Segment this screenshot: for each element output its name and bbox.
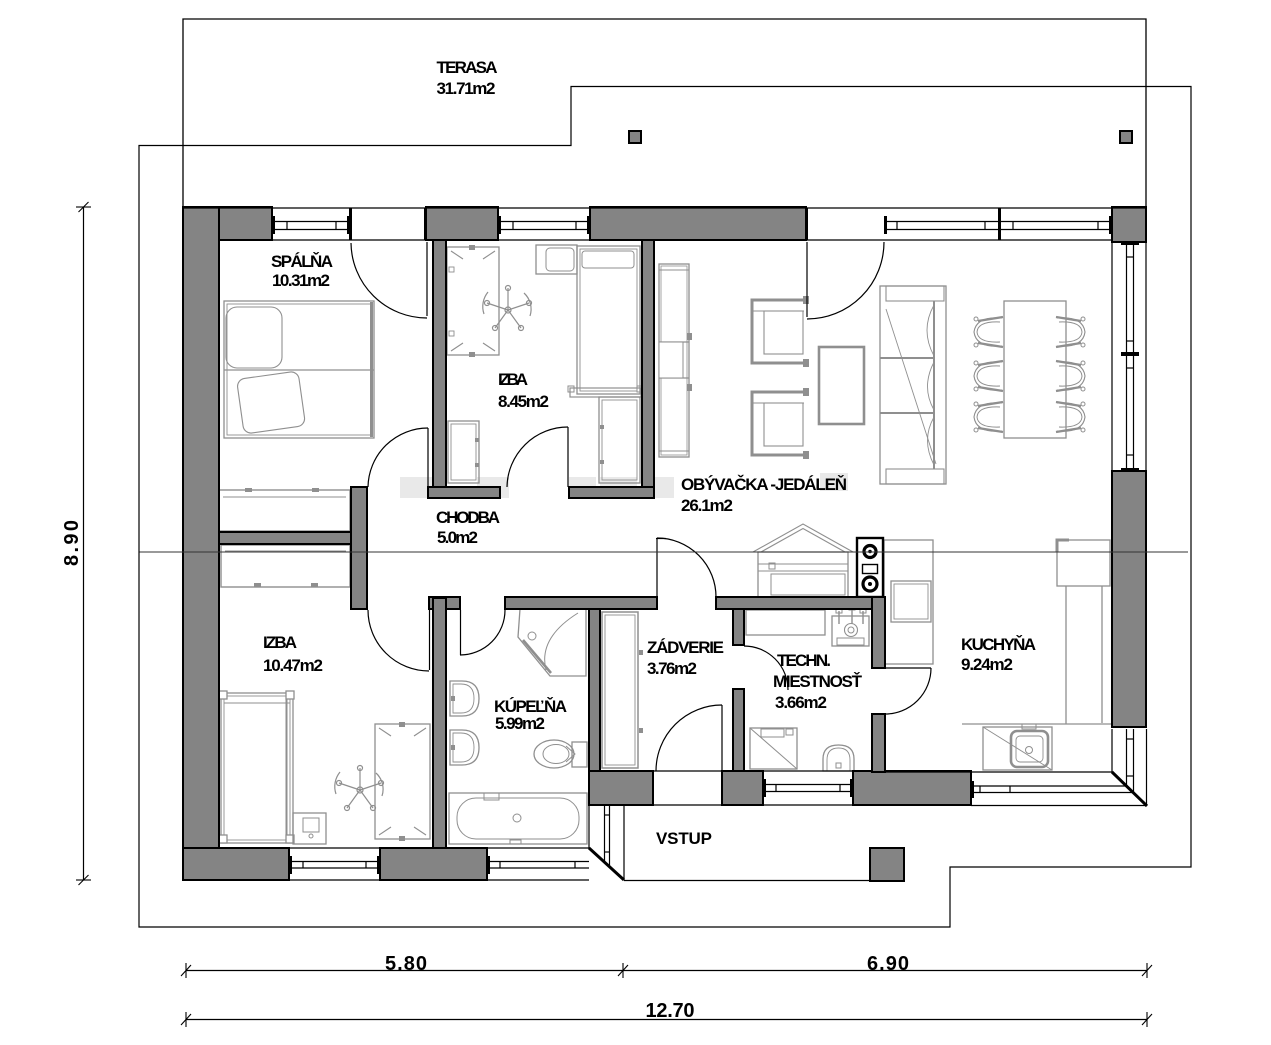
svg-text:SPÁLŇA: SPÁLŇA (271, 252, 333, 271)
svg-text:10.31m2: 10.31m2 (272, 271, 330, 290)
svg-text:12.70: 12.70 (646, 1000, 695, 1022)
svg-text:3.76m2: 3.76m2 (647, 659, 697, 678)
svg-text:10.47m2: 10.47m2 (263, 656, 323, 675)
svg-text:VSTUP: VSTUP (656, 829, 712, 848)
svg-text:8.90: 8.90 (61, 520, 83, 566)
svg-text:MIESTNOSŤ: MIESTNOSŤ (773, 672, 863, 691)
svg-text:8.45m2: 8.45m2 (498, 392, 549, 411)
svg-text:9.24m2: 9.24m2 (961, 655, 1013, 674)
svg-text:TERASA: TERASA (437, 58, 498, 77)
svg-text:KUCHYŇA: KUCHYŇA (961, 635, 1036, 654)
svg-text:3.66m2: 3.66m2 (775, 693, 827, 712)
svg-text:OBÝVAČKA -JEDÁLEŇ: OBÝVAČKA -JEDÁLEŇ (681, 475, 847, 494)
svg-text:IZBA: IZBA (498, 370, 528, 389)
svg-text:6.90: 6.90 (867, 953, 909, 975)
svg-text:ZÁDVERIE: ZÁDVERIE (647, 638, 724, 657)
svg-text:IZBA: IZBA (263, 633, 297, 652)
svg-text:5.99m2: 5.99m2 (495, 714, 545, 733)
svg-text:TECHN.: TECHN. (777, 651, 831, 670)
svg-text:31.71m2: 31.71m2 (437, 79, 496, 98)
svg-text:26.1m2: 26.1m2 (681, 496, 733, 515)
svg-text:CHODBA: CHODBA (436, 508, 500, 527)
svg-text:5.80: 5.80 (385, 953, 427, 975)
svg-text:5.0m2: 5.0m2 (437, 528, 478, 547)
